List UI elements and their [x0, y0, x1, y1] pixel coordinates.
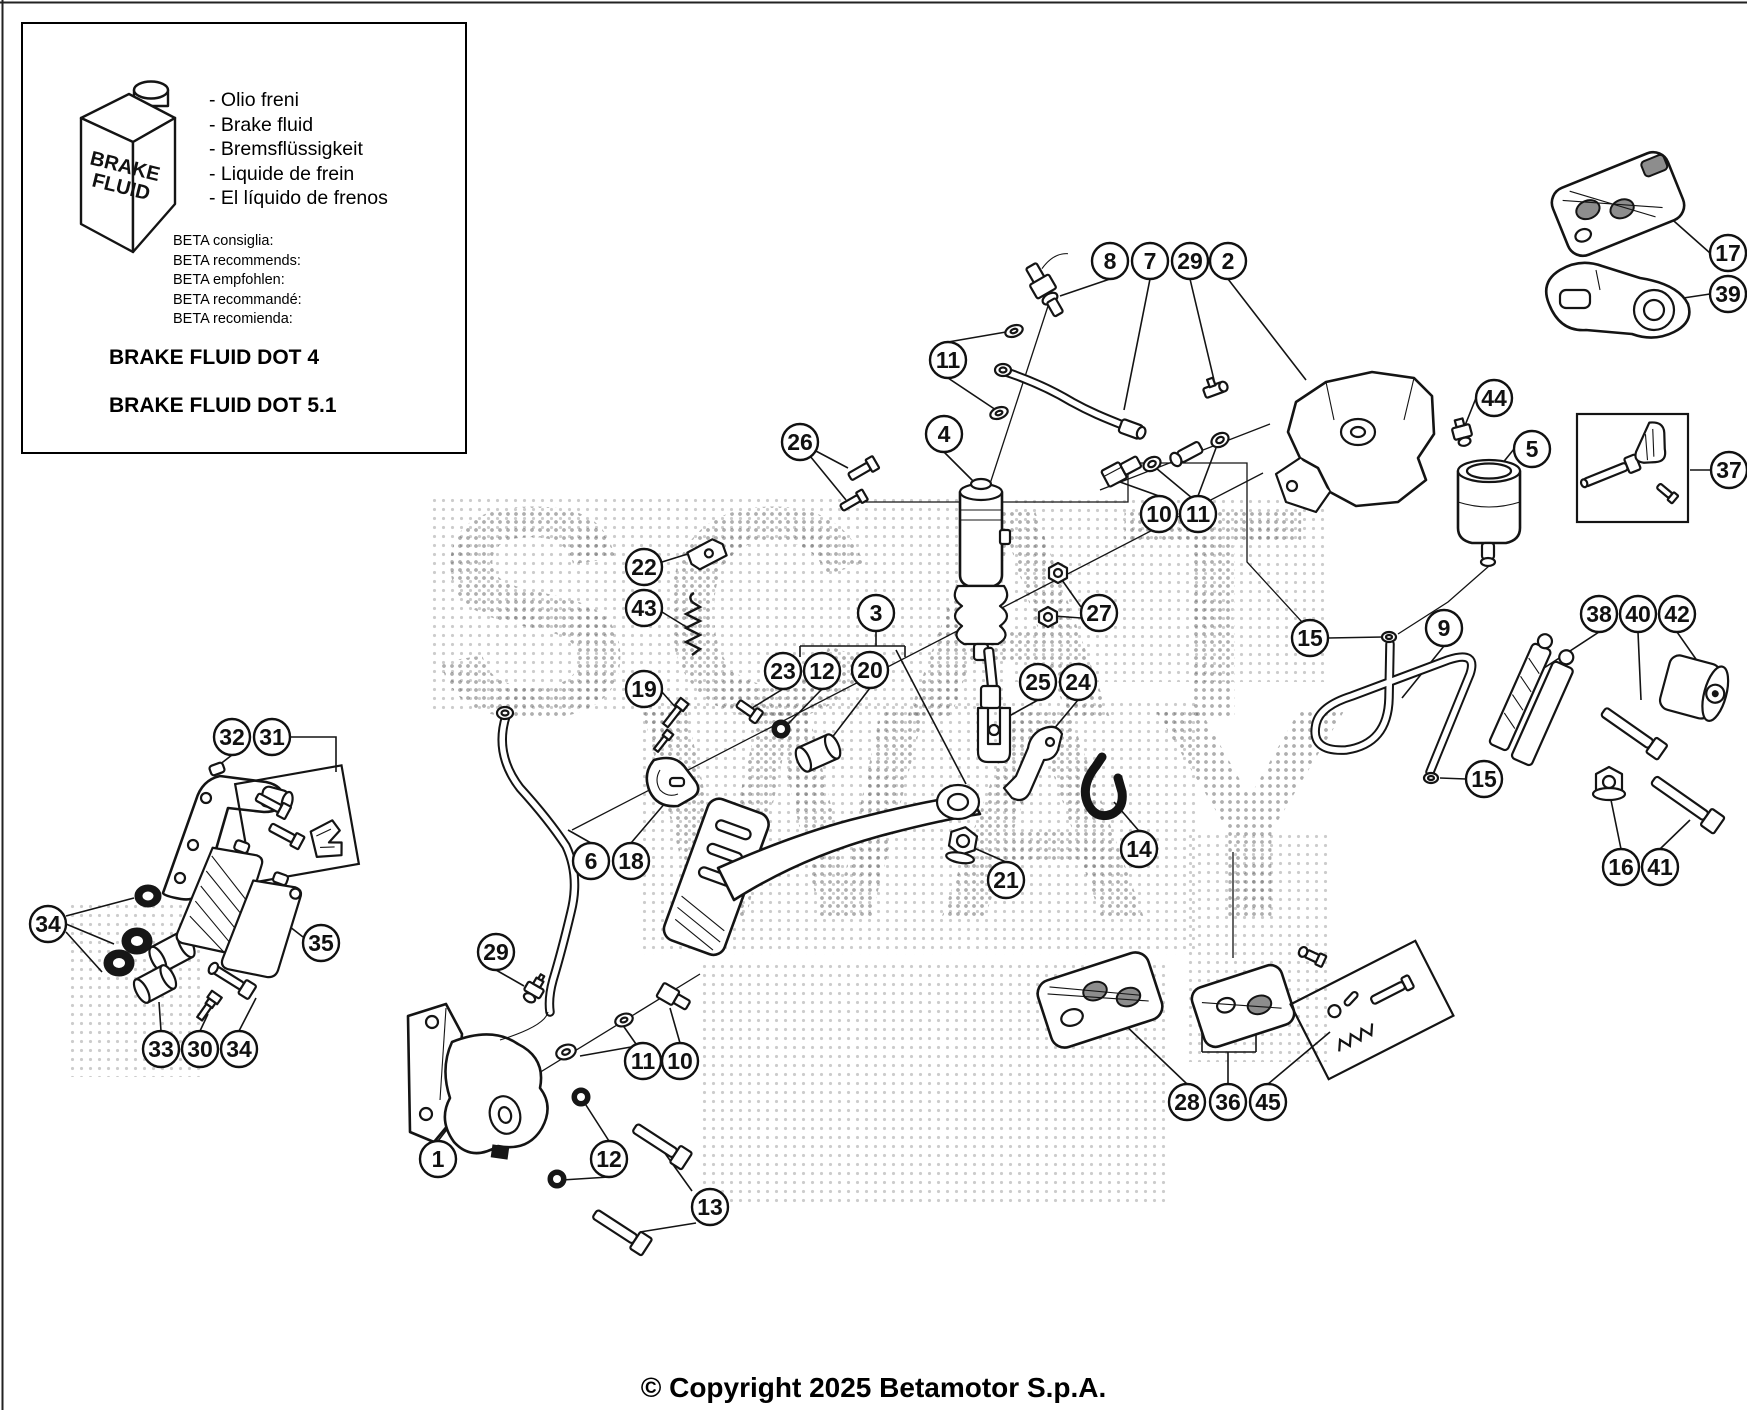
svg-text:43: 43: [631, 595, 657, 621]
svg-text:27: 27: [1086, 600, 1112, 626]
callout-15: 15: [1466, 761, 1502, 797]
svg-text:11: 11: [1186, 501, 1211, 527]
callout-15: 15: [1292, 620, 1328, 656]
part-footpeg-rubber-28: [1034, 949, 1166, 1051]
callout-18: 18: [613, 843, 649, 879]
svg-text:25: 25: [1025, 669, 1051, 695]
svg-text:14: 14: [1126, 836, 1152, 862]
svg-text:39: 39: [1715, 281, 1741, 307]
callout-6: 6: [573, 843, 609, 879]
svg-text:3: 3: [870, 600, 883, 626]
svg-text:34: 34: [226, 1036, 252, 1062]
beta-recommendations: BETA consiglia: BETA recommends: BETA em…: [173, 232, 302, 330]
callout-32: 32: [214, 719, 250, 755]
svg-text:22: 22: [631, 554, 657, 580]
svg-text:7: 7: [1144, 248, 1157, 274]
part-footpeg-17: [1547, 147, 1689, 260]
callout-8: 8: [1092, 243, 1128, 279]
part-reservoir-5: [1450, 417, 1520, 566]
svg-text:10: 10: [667, 1048, 693, 1074]
part-bracket-24: [1004, 727, 1062, 800]
spec-brake-fluid-dot4: BRAKE FLUID DOT 4: [109, 346, 319, 370]
part-spring-14: [1085, 757, 1122, 816]
callout-45: 45: [1250, 1084, 1286, 1120]
part-bleed-union-8: [1021, 247, 1091, 320]
svg-text:38: 38: [1586, 601, 1612, 627]
svg-text:8: 8: [1104, 248, 1117, 274]
svg-text:31: 31: [259, 724, 285, 750]
callout-11: 11: [625, 1043, 661, 1079]
svg-text:16: 16: [1608, 854, 1634, 880]
callout-23: 23: [765, 653, 801, 689]
callout-16: 16: [1603, 849, 1639, 885]
part-bracket-22: [686, 537, 728, 572]
svg-text:30: 30: [187, 1036, 213, 1062]
part-washer-12: [772, 720, 790, 738]
svg-text:6: 6: [585, 848, 598, 874]
callout-36: 36: [1210, 1084, 1246, 1120]
svg-text:45: 45: [1255, 1089, 1281, 1115]
part-spring-43: [686, 593, 700, 655]
svg-text:15: 15: [1297, 625, 1323, 651]
part-caliper-1: [408, 1004, 548, 1159]
part-fastener-36: [1297, 945, 1327, 967]
svg-text:32: 32: [219, 724, 245, 750]
part-washers-11b: [554, 1011, 634, 1062]
part-brake-pedal-3: [661, 785, 980, 958]
callout-37: 37: [1711, 452, 1747, 488]
fluid-name-fr: - Liquide de frein: [209, 162, 388, 187]
callout-17: 17: [1710, 235, 1746, 271]
svg-text:18: 18: [618, 848, 644, 874]
svg-text:9: 9: [1438, 615, 1451, 641]
svg-text:20: 20: [857, 657, 883, 683]
svg-text:44: 44: [1481, 385, 1507, 411]
callout-30: 30: [182, 1031, 218, 1067]
svg-text:36: 36: [1215, 1089, 1241, 1115]
callout-2: 2: [1210, 243, 1246, 279]
part-bolts-26: [839, 456, 880, 513]
svg-text:28: 28: [1174, 1089, 1200, 1115]
beta-recommendation-es: BETA recomienda:: [173, 310, 302, 330]
callout-7: 7: [1132, 243, 1168, 279]
callout-43: 43: [626, 590, 662, 626]
callout-1: 1: [420, 1141, 456, 1177]
callout-31: 31: [254, 719, 290, 755]
callout-44: 44: [1476, 380, 1512, 416]
svg-text:1: 1: [432, 1146, 445, 1172]
callout-21: 21: [988, 862, 1024, 898]
part-bolts-13: [589, 1119, 692, 1256]
callout-3: 3: [858, 595, 894, 631]
callout-42: 42: [1659, 596, 1695, 632]
part-peg-mount-39: [1546, 263, 1689, 338]
svg-text:33: 33: [148, 1036, 174, 1062]
callout-34: 34: [30, 906, 66, 942]
callout-22: 22: [626, 549, 662, 585]
part-bleed-screw-30: [195, 991, 222, 1022]
fluid-name-en: - Brake fluid: [209, 113, 388, 138]
beta-recommendation-de: BETA empfohlen:: [173, 271, 302, 291]
part-rear-caliper-2: [1200, 372, 1434, 512]
callout-25: 25: [1020, 664, 1056, 700]
svg-text:11: 11: [936, 347, 961, 373]
callout-10: 10: [1141, 496, 1177, 532]
svg-text:42: 42: [1664, 601, 1690, 627]
part-orings-12b: [548, 1088, 590, 1188]
part-footpeg-rubber-36: [1189, 962, 1298, 1050]
svg-text:21: 21: [993, 867, 1019, 893]
callout-24: 24: [1060, 664, 1096, 700]
callout-9: 9: [1426, 610, 1462, 646]
fluid-names-list: - Olio freni - Brake fluid - Bremsflüssi…: [209, 88, 388, 211]
callout-28: 28: [1169, 1084, 1205, 1120]
svg-text:35: 35: [308, 930, 334, 956]
svg-text:41: 41: [1647, 854, 1673, 880]
svg-text:13: 13: [697, 1194, 723, 1220]
callout-26: 26: [782, 424, 818, 460]
callout-20: 20: [852, 652, 888, 688]
svg-text:2: 2: [1222, 248, 1235, 274]
fluid-name-es: - El líquido de frenos: [209, 186, 388, 211]
spec-brake-fluid-dot51: BRAKE FLUID DOT 5.1: [109, 394, 337, 418]
part-pin-23: [734, 697, 763, 723]
callout-12: 12: [591, 1141, 627, 1177]
callout-13: 13: [692, 1189, 728, 1225]
svg-text:34: 34: [35, 911, 61, 937]
part-hose-guide-18: [647, 758, 698, 806]
callout-40: 40: [1620, 596, 1656, 632]
svg-text:5: 5: [1526, 436, 1539, 462]
svg-text:4: 4: [938, 421, 951, 447]
svg-text:40: 40: [1625, 601, 1651, 627]
brake-fluid-info-box: BRAKE FLUID - Olio freni - Brake fluid -…: [21, 22, 467, 454]
callout-11: 11: [930, 342, 966, 378]
parts-diagram-page: SCAT WAY .ln{fill:none;stroke:#141414;st…: [0, 0, 1747, 1410]
beta-recommendation-it: BETA consiglia:: [173, 232, 302, 252]
part-hose-7: [995, 364, 1147, 441]
part-bolt-41: [1648, 772, 1725, 834]
svg-text:24: 24: [1065, 669, 1091, 695]
callout-19: 19: [626, 671, 662, 707]
svg-text:29: 29: [483, 939, 509, 965]
callout-35: 35: [303, 925, 339, 961]
part-nut-21: [945, 825, 979, 865]
svg-text:19: 19: [631, 676, 657, 702]
svg-text:26: 26: [787, 429, 813, 455]
beta-recommendation-en: BETA recommends:: [173, 252, 302, 272]
callout-12: 12: [804, 653, 840, 689]
part-banjo-bolt-10b: [656, 983, 692, 1013]
callout-4: 4: [926, 416, 962, 452]
callout-14: 14: [1121, 831, 1157, 867]
part-master-cylinder-4: [955, 479, 1010, 660]
callout-33: 33: [143, 1031, 179, 1067]
part-brake-pipe-9: [1315, 632, 1472, 783]
svg-text:12: 12: [596, 1146, 622, 1172]
svg-text:29: 29: [1177, 248, 1203, 274]
part-nut-16: [1593, 767, 1625, 800]
svg-text:17: 17: [1715, 240, 1741, 266]
callout-29: 29: [1172, 243, 1208, 279]
callout-38: 38: [1581, 596, 1617, 632]
part-bushing-20: [793, 732, 844, 774]
svg-text:15: 15: [1471, 766, 1497, 792]
part-pushrod-25: [978, 648, 1010, 762]
callout-5: 5: [1514, 431, 1550, 467]
fluid-name-de: - Bremsflüssigkeit: [209, 137, 388, 162]
callout-10: 10: [662, 1043, 698, 1079]
callout-41: 41: [1642, 849, 1678, 885]
svg-text:11: 11: [631, 1048, 656, 1074]
callout-29: 29: [478, 934, 514, 970]
fluid-name-it: - Olio freni: [209, 88, 388, 113]
callout-27: 27: [1081, 595, 1117, 631]
copyright-notice: © Copyright 2025 Betamotor S.p.A.: [0, 1372, 1747, 1404]
part-roller-42: [1658, 653, 1733, 723]
part-screws-19: [653, 698, 689, 753]
svg-text:23: 23: [770, 658, 796, 684]
callout-34: 34: [221, 1031, 257, 1067]
callout-11: 11: [1180, 496, 1216, 532]
beta-recommendation-fr: BETA recommandé:: [173, 291, 302, 311]
svg-text:37: 37: [1716, 457, 1742, 483]
part-pad-pin-40: [1598, 704, 1667, 760]
part-brake-pads-38: [1487, 631, 1583, 767]
part-kit-box-37: [1577, 414, 1688, 522]
svg-text:12: 12: [809, 658, 835, 684]
callout-39: 39: [1710, 276, 1746, 312]
svg-text:10: 10: [1146, 501, 1172, 527]
